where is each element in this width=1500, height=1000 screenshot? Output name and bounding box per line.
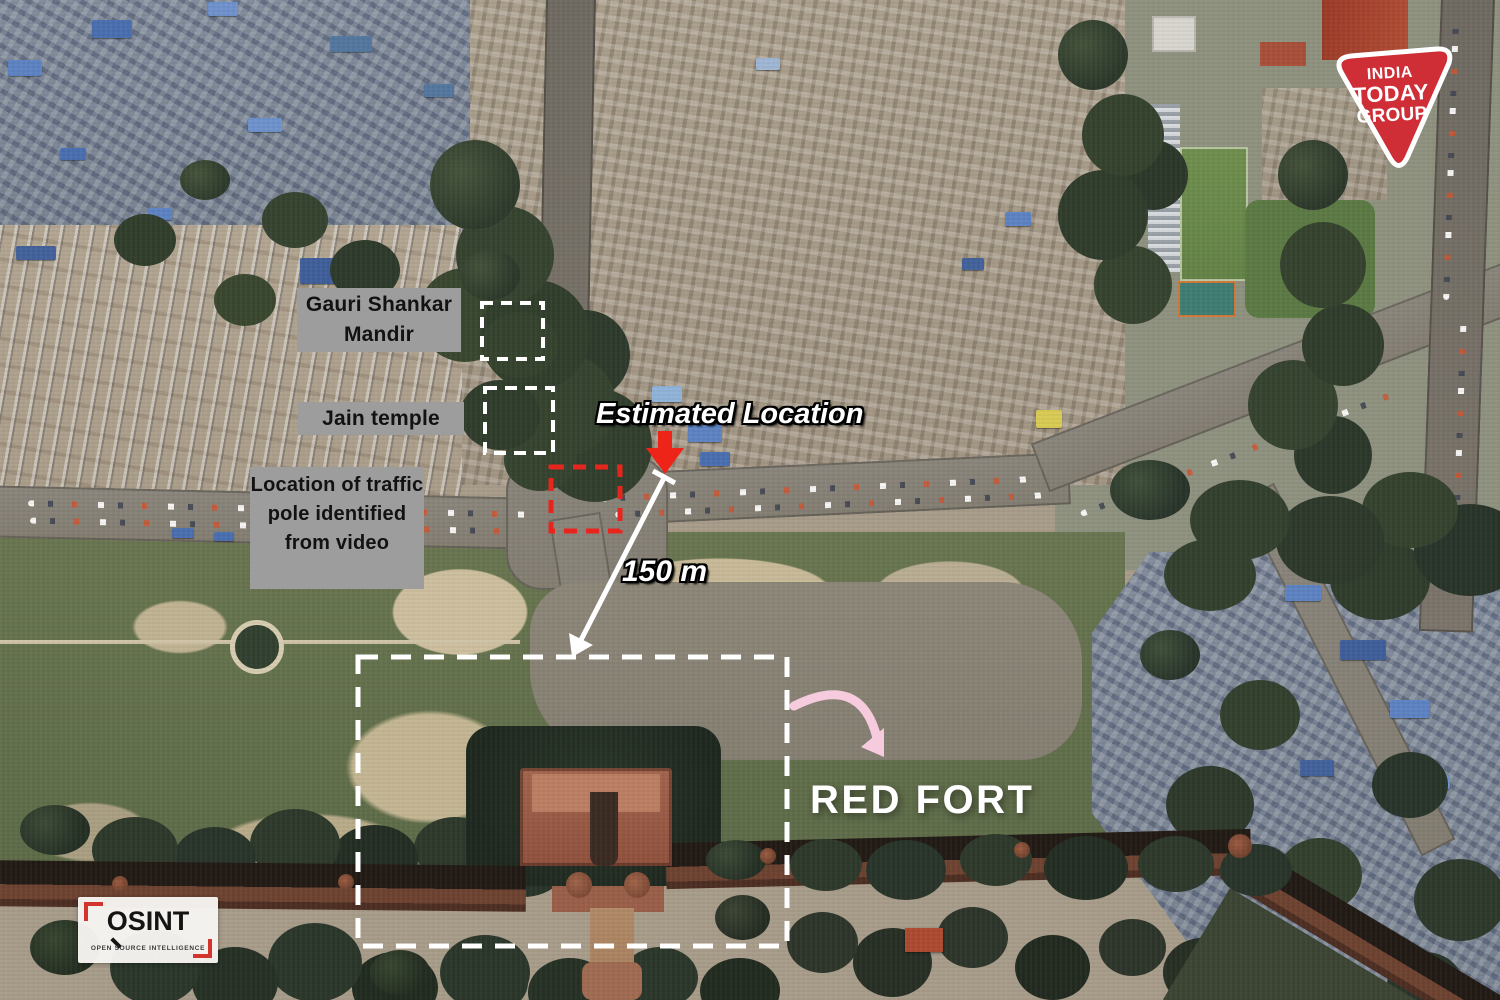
wall-bastion (112, 876, 128, 892)
lahori-gate-arch-shadow (590, 792, 618, 866)
building-roof (8, 60, 42, 76)
tree-cluster (1110, 460, 1190, 520)
barbican-end (582, 962, 642, 1000)
park-fountain (230, 620, 284, 674)
building-roof (1005, 212, 1031, 226)
label-gauri-shankar-mandir: Gauri Shankar Mandir (297, 288, 461, 352)
label-estimated-location: Estimated Location (596, 398, 864, 431)
building-roof (214, 532, 234, 541)
osint-wordmark: OSINT (78, 906, 218, 937)
tree-cluster (715, 895, 770, 940)
lawn (1245, 200, 1375, 318)
building-roof (330, 36, 372, 52)
building-roof (1285, 585, 1321, 601)
label-red-fort: RED FORT (810, 778, 1034, 823)
building-roof (520, 322, 540, 332)
wall-bastion (1014, 842, 1030, 858)
building-roof (1340, 640, 1386, 660)
building-roof (1036, 410, 1062, 428)
building-roof (612, 446, 634, 458)
building-roof (172, 528, 194, 538)
india-today-text: INDIA TODAY GROUP (1338, 63, 1445, 128)
wall-bastion (338, 874, 354, 890)
building-roof (424, 84, 454, 97)
tree-cluster (460, 250, 520, 300)
osint-tagline: OPEN SOURCE INTELLIGENCE (78, 945, 218, 952)
building-roof (549, 328, 558, 335)
basketball-court (1178, 281, 1236, 317)
tree-cluster (180, 160, 230, 200)
label-distance: 150 m (622, 555, 707, 589)
building-roof (92, 20, 132, 38)
osint-logo: OSINT OPEN SOURCE INTELLIGENCE (78, 897, 218, 963)
wall-bastion (760, 848, 776, 864)
label-line: Gauri Shankar (306, 293, 452, 316)
building-roof (1420, 775, 1450, 789)
building-roof (16, 246, 56, 260)
red-roof-building (1260, 42, 1306, 66)
building-roof (208, 2, 238, 16)
sports-field (1180, 147, 1248, 281)
building-roof (248, 118, 282, 132)
building-roof (60, 148, 86, 160)
building-roof (543, 298, 553, 306)
label-line: Mandir (344, 323, 414, 346)
building-roof (700, 452, 730, 466)
lahori-gate-tower (624, 872, 650, 898)
label-traffic-pole: Location of traffic pole identified from… (250, 467, 424, 589)
map-canvas: Gauri Shankar Mandir Jain temple Locatio… (0, 0, 1500, 1000)
building-roof (756, 58, 780, 70)
tree-cluster (370, 950, 430, 995)
label-jain-temple: Jain temple (298, 402, 464, 435)
tree-cluster (1140, 630, 1200, 680)
tree-cluster (430, 140, 520, 230)
building-roof (300, 258, 358, 284)
building-roof (962, 258, 984, 270)
lahori-gate-tower (566, 872, 592, 898)
tree-cluster (706, 840, 766, 880)
tree-cluster (20, 805, 90, 855)
wall-bastion (1228, 834, 1252, 858)
building-roof (148, 208, 172, 220)
building-roof (1300, 760, 1334, 776)
white-building (1152, 16, 1196, 52)
india-today-group-logo: INDIA TODAY GROUP (1325, 42, 1465, 174)
road-chandni-chowk (536, 0, 596, 480)
grandstand-roof (1148, 104, 1180, 272)
building-roof (1390, 700, 1430, 718)
garden-hut (905, 928, 943, 952)
tree-cluster (1058, 20, 1128, 90)
